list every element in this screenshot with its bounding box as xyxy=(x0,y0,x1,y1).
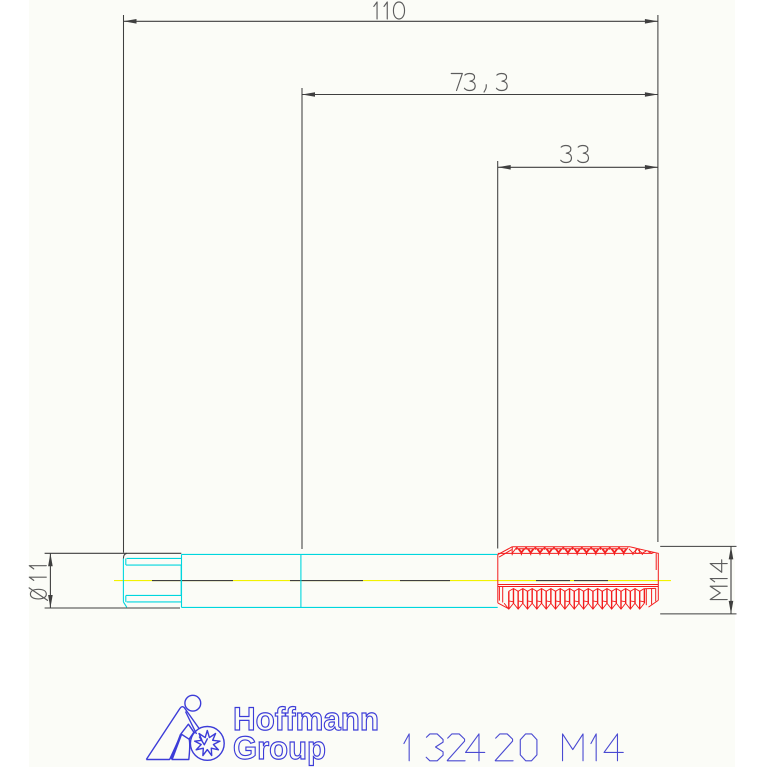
svg-text:Group: Group xyxy=(233,730,326,766)
